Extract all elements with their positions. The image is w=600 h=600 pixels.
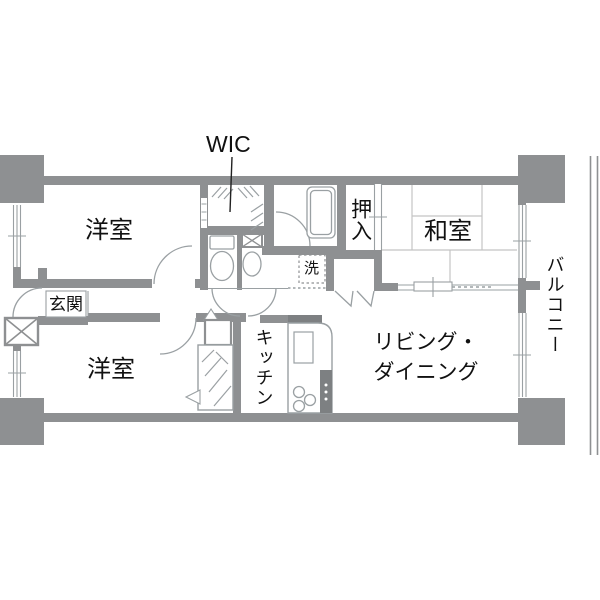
living-dining-label-line2: ダイニング [371, 362, 481, 385]
pipe-shaft-washroom [242, 234, 262, 247]
bathtub-fixture [307, 187, 335, 238]
window-living-dining [513, 313, 531, 397]
window-japanese-room [513, 205, 531, 278]
window-bedroom-bottom-left [8, 351, 26, 397]
laundry-label: 洗 [304, 261, 319, 277]
wic-door [201, 198, 207, 228]
bedroom-bottom-label: 洋室 [63, 357, 159, 383]
bedroom-top-door-arc [154, 246, 192, 284]
bedroom-bottom-closets [186, 309, 233, 410]
washroom-door-arc [248, 288, 276, 316]
partition-japanese-room [398, 277, 518, 297]
bedroom-bottom-door-arc [160, 318, 196, 354]
bath-door-arc [276, 212, 310, 246]
floorplan-drawing [0, 0, 600, 600]
japanese-room-label: 和室 [400, 219, 496, 245]
entrance-door-arc [13, 288, 42, 317]
corridor-boundaries [208, 288, 326, 289]
toilet-fixture [210, 236, 234, 281]
oshiire-label: 押入 [348, 198, 371, 242]
toilet-door-arc [212, 288, 240, 316]
storage-double-doors [335, 291, 374, 306]
pipe-shaft-left [5, 318, 38, 345]
wic-label: WIC [206, 132, 251, 157]
floor-plan: WIC 洋室 和室 押入 洗 玄関 洋室 キッチン リビング・ ダイニング バル… [0, 0, 600, 600]
kitchen-counter [288, 315, 332, 413]
wic-leader-line [230, 157, 232, 212]
bedroom-top-label: 洋室 [61, 218, 157, 244]
window-bedroom-top-left [8, 205, 26, 267]
kitchen-sink [294, 332, 313, 363]
kitchen-label: キッチン [253, 328, 272, 408]
washbasin-fixture [243, 252, 261, 276]
entrance-label: 玄関 [46, 296, 86, 314]
balcony-label: バルコニー [544, 255, 563, 355]
living-dining-label-line1: リビング・ [371, 332, 481, 355]
balcony-railing [591, 156, 598, 455]
wic-hatch-marks [212, 186, 263, 230]
